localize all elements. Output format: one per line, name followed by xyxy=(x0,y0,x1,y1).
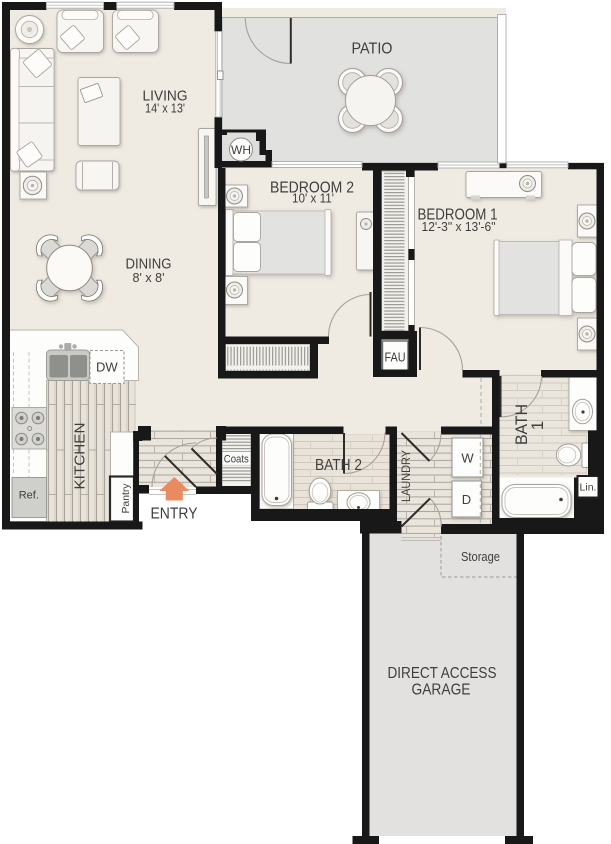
svg-text:14' x 13': 14' x 13' xyxy=(145,102,185,116)
svg-text:Storage: Storage xyxy=(461,550,500,564)
svg-text:DINING: DINING xyxy=(126,256,172,273)
svg-text:10' x 11': 10' x 11' xyxy=(292,192,334,206)
svg-text:FAU: FAU xyxy=(385,351,406,365)
svg-text:D: D xyxy=(462,492,471,507)
svg-text:WH: WH xyxy=(231,143,251,157)
svg-text:BATH 2: BATH 2 xyxy=(315,457,362,474)
svg-text:Pantry: Pantry xyxy=(120,483,132,514)
svg-text:PATIO: PATIO xyxy=(352,41,393,58)
svg-text:Lin.: Lin. xyxy=(580,482,597,494)
svg-text:DIRECT ACCESS: DIRECT ACCESS xyxy=(388,665,497,682)
svg-text:1: 1 xyxy=(529,421,547,430)
svg-text:Coats: Coats xyxy=(224,454,249,466)
svg-text:DW: DW xyxy=(96,360,118,375)
svg-text:LAUNDRY: LAUNDRY xyxy=(399,450,413,502)
svg-text:KITCHEN: KITCHEN xyxy=(73,423,89,490)
svg-text:8' x 8': 8' x 8' xyxy=(133,271,165,285)
svg-text:12'-3" x 13'-6": 12'-3" x 13'-6" xyxy=(422,220,496,234)
svg-text:GARAGE: GARAGE xyxy=(412,682,471,699)
svg-text:ENTRY: ENTRY xyxy=(151,505,198,522)
svg-text:Ref.: Ref. xyxy=(19,490,39,502)
svg-text:W: W xyxy=(461,451,474,466)
